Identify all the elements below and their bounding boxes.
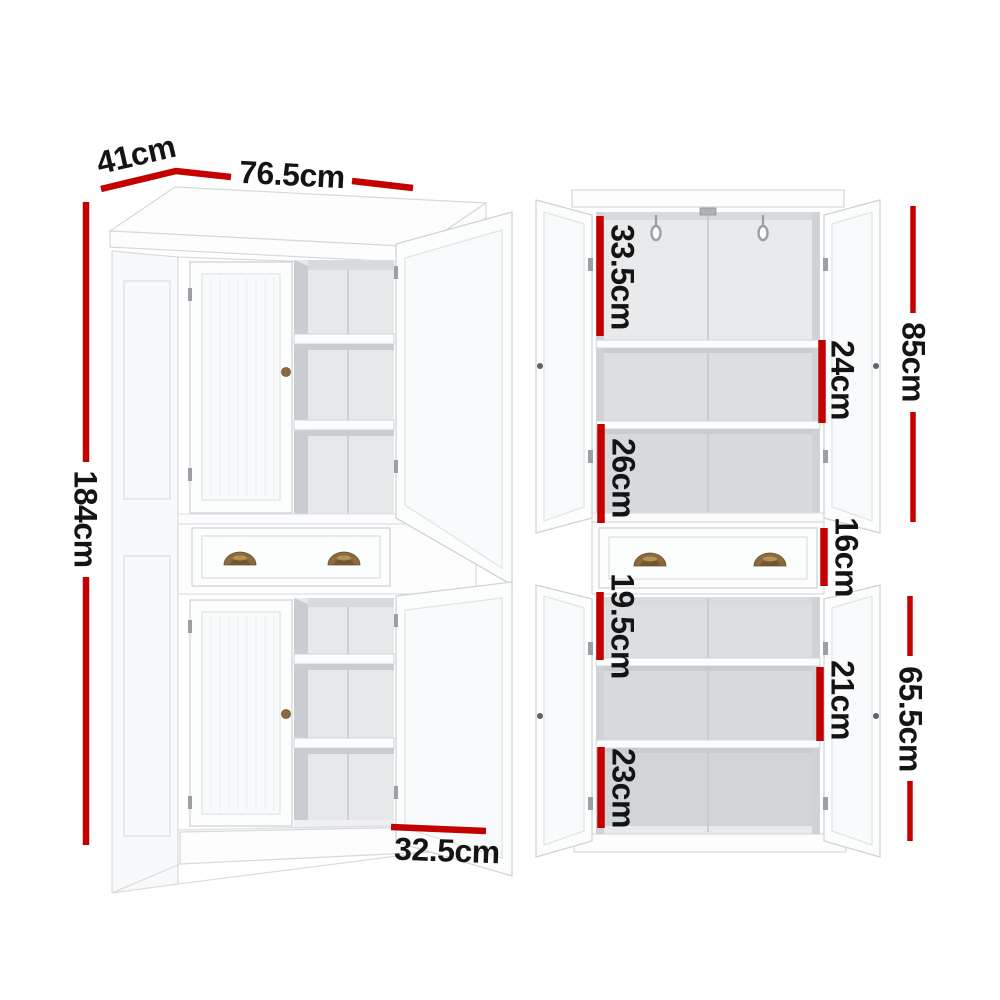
shelf <box>596 740 820 748</box>
upper-interior <box>294 260 394 514</box>
door-knob-icon <box>873 713 879 719</box>
dim-label-lower-cabinet-height: 65.5cm <box>892 666 929 772</box>
shelf <box>596 340 820 348</box>
drawer-front <box>192 528 390 586</box>
door-knob-icon <box>537 363 543 369</box>
dim-label-lower-bottom-shelf-space: 23cm <box>605 748 642 828</box>
dim-label-lower-top-shelf-space: 19.5cm <box>604 573 641 679</box>
angled-view-cabinet <box>110 187 512 893</box>
door-knob-icon <box>873 363 879 369</box>
door-knob-icon <box>537 713 543 719</box>
dim-label-upper-bottom-shelf-space: 26cm <box>605 438 642 518</box>
top-board <box>572 190 844 207</box>
shelf <box>294 738 394 748</box>
dim-label-width: 76.5cm <box>238 154 345 196</box>
shelf <box>294 654 394 664</box>
lower-left-door-open <box>536 585 593 857</box>
product-dimension-diagram: 41cm 76.5cm 184cm 32.5cm 33.5cm 24cm 85c… <box>0 0 1000 1000</box>
dim-label-lower-door-width: 32.5cm <box>394 831 501 872</box>
dim-label-drawer-height: 16cm <box>828 517 865 597</box>
lower-interior <box>294 598 394 830</box>
upper-left-door-closed <box>188 262 292 513</box>
shelf <box>596 421 820 429</box>
upper-left-door-open <box>536 200 593 533</box>
shelf-bracket <box>700 208 716 215</box>
dim-label-lower-middle-shelf-space: 21cm <box>824 660 861 740</box>
door-knob-icon <box>282 368 291 377</box>
bottom-board <box>574 834 846 852</box>
lower-left-door-closed <box>188 600 292 826</box>
shelf <box>294 420 394 430</box>
dim-label-height: 184cm <box>67 470 104 567</box>
dim-label-upper-middle-shelf-space: 24cm <box>824 340 861 420</box>
dim-label-upper-cabinet-height: 85cm <box>895 322 932 402</box>
dim-line-width <box>352 181 413 188</box>
shelf <box>294 334 394 344</box>
dim-label-upper-top-shelf-space: 33.5cm <box>604 224 641 330</box>
door-knob-icon <box>282 710 291 719</box>
side-panel <box>112 251 178 893</box>
